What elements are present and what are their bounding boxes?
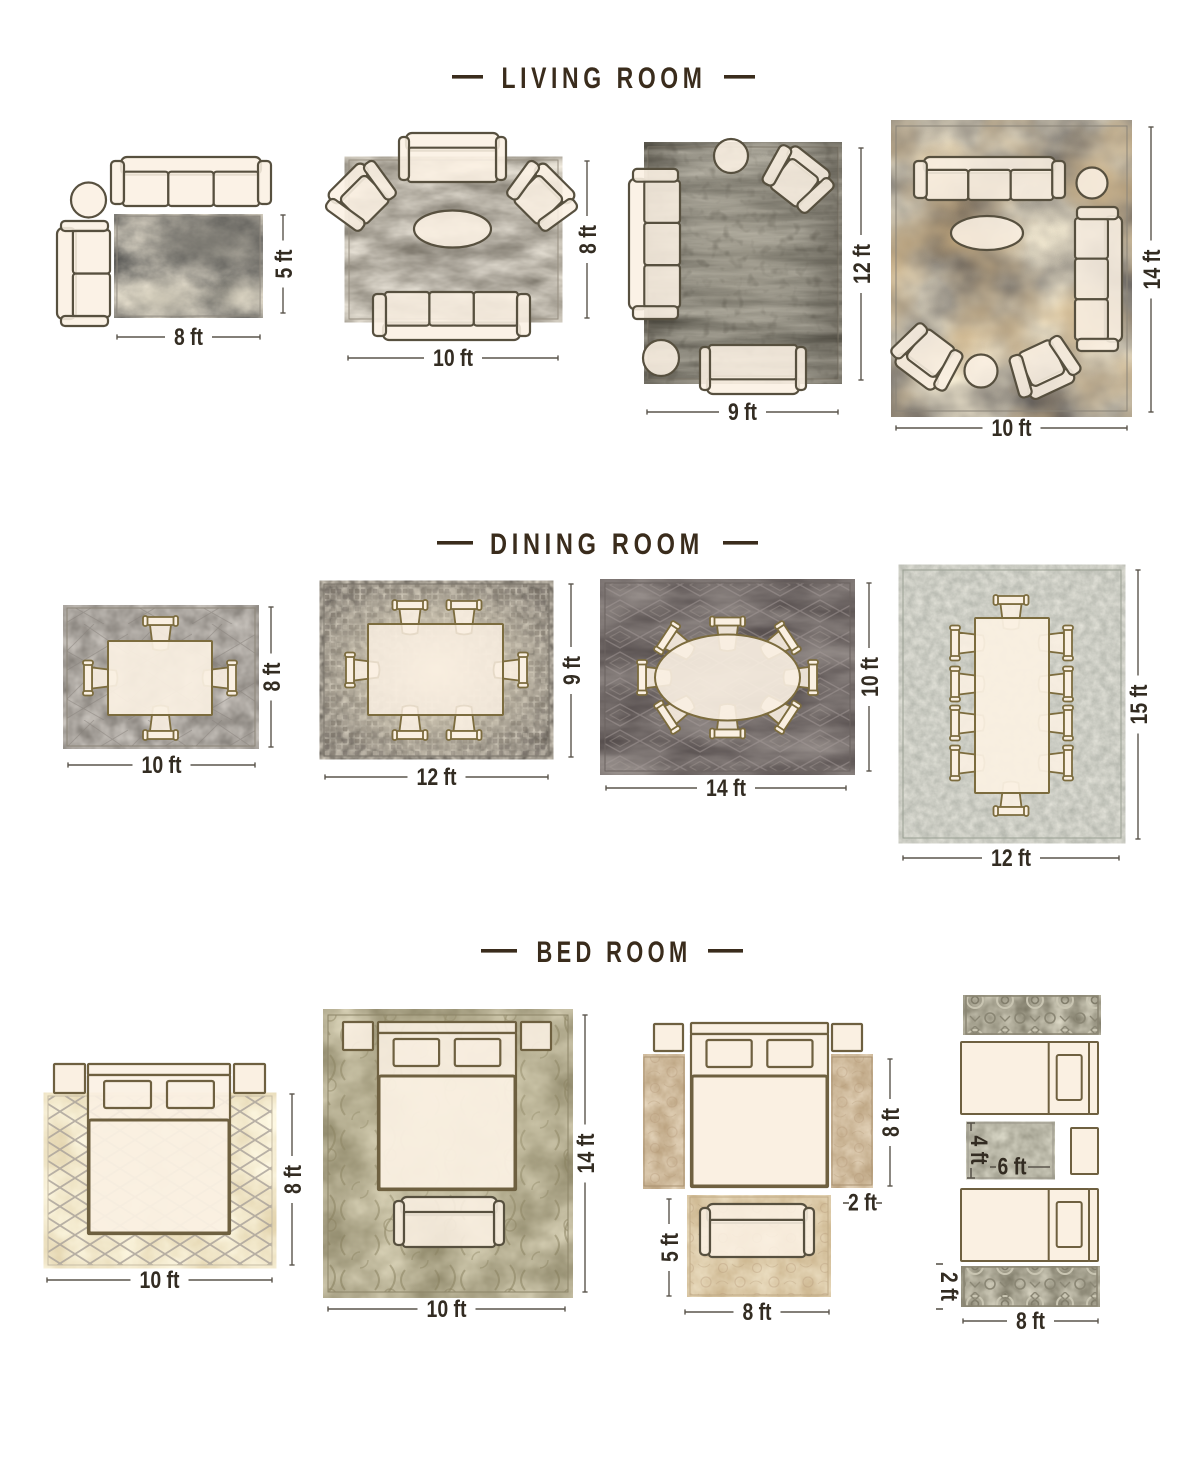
svg-text:8 ft: 8 ft xyxy=(259,662,286,691)
svg-text:DINING ROOM: DINING ROOM xyxy=(490,528,704,561)
svg-text:2 ft: 2 ft xyxy=(935,1272,962,1301)
svg-text:8 ft: 8 ft xyxy=(174,324,203,351)
svg-text:5 ft: 5 ft xyxy=(657,1233,684,1262)
svg-text:9 ft: 9 ft xyxy=(728,399,757,426)
svg-text:14 ft: 14 ft xyxy=(573,1134,600,1174)
svg-text:12 ft: 12 ft xyxy=(849,244,876,284)
svg-text:12 ft: 12 ft xyxy=(417,764,457,791)
svg-text:8 ft: 8 ft xyxy=(575,225,602,254)
svg-text:10 ft: 10 ft xyxy=(857,657,884,697)
svg-text:2 ft: 2 ft xyxy=(848,1190,877,1217)
svg-text:10 ft: 10 ft xyxy=(140,1267,180,1294)
svg-text:12 ft: 12 ft xyxy=(991,845,1031,872)
svg-text:9 ft: 9 ft xyxy=(559,656,586,685)
svg-text:8 ft: 8 ft xyxy=(280,1165,307,1194)
svg-text:5 ft: 5 ft xyxy=(271,249,298,278)
svg-text:LIVING ROOM: LIVING ROOM xyxy=(502,62,707,95)
svg-text:10 ft: 10 ft xyxy=(433,345,473,372)
svg-text:4 ft: 4 ft xyxy=(965,1136,992,1165)
svg-text:10 ft: 10 ft xyxy=(427,1296,467,1323)
svg-text:BED ROOM: BED ROOM xyxy=(537,936,692,969)
svg-text:10 ft: 10 ft xyxy=(142,752,182,779)
svg-text:6 ft: 6 ft xyxy=(998,1154,1027,1181)
svg-text:10 ft: 10 ft xyxy=(992,415,1032,442)
svg-text:8 ft: 8 ft xyxy=(743,1299,772,1326)
svg-text:14 ft: 14 ft xyxy=(1139,250,1166,290)
svg-text:8 ft: 8 ft xyxy=(878,1108,905,1137)
svg-text:15 ft: 15 ft xyxy=(1126,685,1153,725)
svg-text:8 ft: 8 ft xyxy=(1016,1308,1045,1335)
svg-text:14 ft: 14 ft xyxy=(706,775,746,802)
